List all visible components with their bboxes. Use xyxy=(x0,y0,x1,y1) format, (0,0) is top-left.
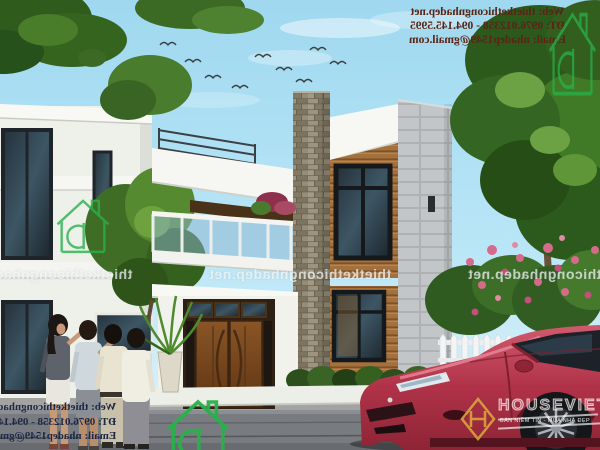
houseviet-name: HOUSEVIET xyxy=(498,397,600,415)
architectural-render-image: thietkethicongnhadep.net thietkethicongn… xyxy=(0,0,600,450)
green-house-logo-icon xyxy=(545,4,600,100)
side-mirror xyxy=(515,360,533,372)
houseviet-tagline: BÁN NIỀM TIN - MUA NHÀ ĐẸP xyxy=(500,418,590,424)
green-house-logo-icon xyxy=(52,190,114,260)
green-house-logo-icon xyxy=(158,394,238,450)
gray-block-wall xyxy=(398,100,452,372)
houseviet-emblem-icon xyxy=(460,396,496,442)
houseviet-watermark: HOUSEVIET BÁN NIỀM TIN - MUA NHÀ ĐẸP xyxy=(458,394,600,446)
stone-column xyxy=(293,92,330,392)
upper-window xyxy=(336,166,390,258)
ground-window xyxy=(334,292,384,360)
wall-lamp xyxy=(428,196,435,212)
